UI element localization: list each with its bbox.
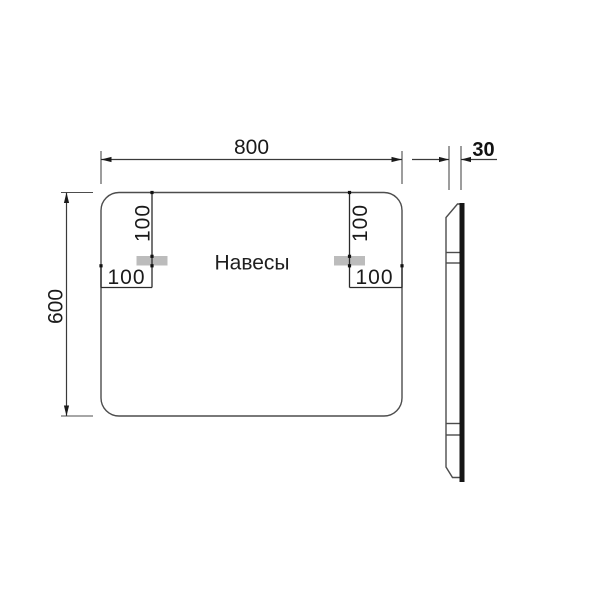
dim-dot <box>150 255 153 258</box>
dim-dot <box>400 264 403 267</box>
width-dimension-label: 800 <box>234 136 269 159</box>
right-hanger-top-offset-label: 100 <box>349 204 372 242</box>
depth-arrow-left-icon <box>439 157 449 162</box>
side-glass-face <box>460 203 465 482</box>
depth-arrow-right-icon <box>461 157 471 162</box>
dim-dot <box>150 191 153 194</box>
drawing-sheet: 800 600 100 100 100 100 Навесы <box>0 0 600 600</box>
dim-dot <box>99 264 102 267</box>
width-arrow-left-icon <box>101 157 112 162</box>
depth-dimension-label: 30 <box>472 139 494 161</box>
right-hanger-side-offset-label: 100 <box>355 266 393 289</box>
dim-dot <box>348 191 351 194</box>
dim-dot <box>348 264 351 267</box>
technical-drawing: 800 600 100 100 100 100 Навесы <box>0 0 600 600</box>
height-arrow-bottom-icon <box>64 406 69 417</box>
dim-dot <box>348 255 351 258</box>
left-hanger-top-offset-label: 100 <box>132 204 155 242</box>
left-hanger-side-offset-label: 100 <box>107 266 145 289</box>
height-dimension-label: 600 <box>45 289 68 324</box>
hangers-label: Навесы <box>214 252 289 275</box>
width-arrow-right-icon <box>392 157 403 162</box>
dim-dot <box>150 264 153 267</box>
height-arrow-top-icon <box>64 193 69 204</box>
side-backing-outline <box>446 204 460 478</box>
